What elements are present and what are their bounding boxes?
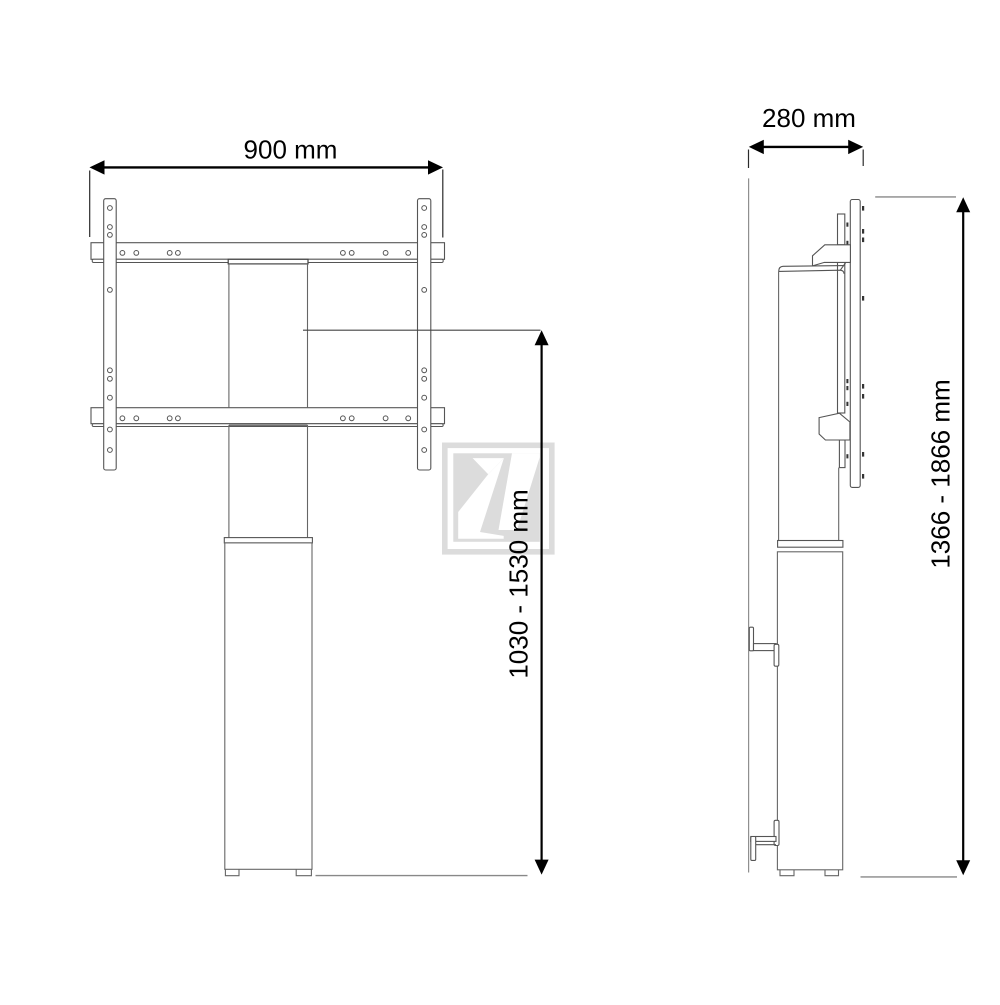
svg-text:280 mm: 280 mm (762, 103, 856, 133)
svg-text:1366 - 1866 mm: 1366 - 1866 mm (926, 379, 956, 568)
svg-text:1030 - 1530 mm: 1030 - 1530 mm (504, 489, 534, 678)
svg-text:900 mm: 900 mm (244, 135, 338, 165)
